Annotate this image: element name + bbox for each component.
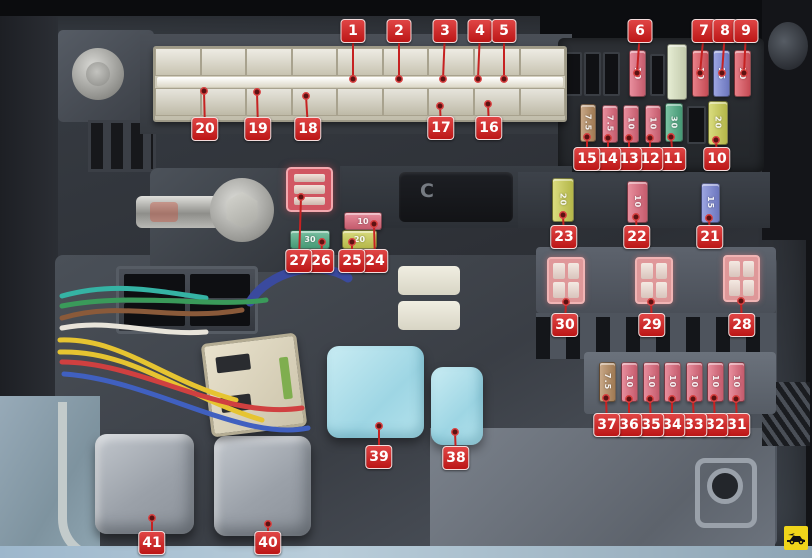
- callout-dot-15: [584, 134, 590, 140]
- callout-21: 21: [696, 225, 723, 249]
- callout-9: 9: [734, 19, 759, 43]
- callout-dot-17: [437, 103, 443, 109]
- callout-dot-36: [626, 396, 632, 402]
- callout-28: 28: [728, 313, 755, 337]
- fuse-box-photo: C 101015107.57.5101030202010151030207.51…: [0, 0, 812, 558]
- callout-dot-14: [605, 135, 611, 141]
- callout-dot-29: [648, 299, 654, 305]
- callout-dot-8: [719, 70, 725, 76]
- callout-dot-34: [669, 396, 675, 402]
- callout-dot-33: [690, 396, 696, 402]
- callout-24: 24: [361, 249, 388, 273]
- callout-dot-28: [738, 298, 744, 304]
- callout-10: 10: [703, 147, 730, 171]
- callout-dot-13: [626, 135, 632, 141]
- callout-dot-25: [349, 239, 355, 245]
- callout-dot-35: [647, 396, 653, 402]
- callout-dot-27: [298, 194, 304, 200]
- callout-dot-30: [563, 299, 569, 305]
- callout-dot-7: [697, 70, 703, 76]
- callout-29: 29: [638, 313, 665, 337]
- callout-16: 16: [475, 116, 502, 140]
- callout-dot-19: [254, 89, 260, 95]
- callout-dot-24: [371, 221, 377, 227]
- callout-19: 19: [244, 117, 271, 141]
- callout-dot-11: [668, 134, 674, 140]
- car-icon: [786, 531, 806, 545]
- callout-dot-12: [647, 135, 653, 141]
- callout-dot-3: [440, 76, 446, 82]
- callout-dot-18: [303, 93, 309, 99]
- callout-dot-10: [713, 137, 719, 143]
- callout-27: 27: [285, 249, 312, 273]
- callout-dot-26: [319, 239, 325, 245]
- callout-dot-9: [741, 70, 747, 76]
- callout-23: 23: [550, 225, 577, 249]
- callout-4: 4: [468, 19, 493, 43]
- callout-leader-lines: [0, 0, 812, 558]
- callout-dot-32: [711, 395, 717, 401]
- callout-dot-1: [350, 76, 356, 82]
- callout-2: 2: [387, 19, 412, 43]
- callout-17: 17: [427, 116, 454, 140]
- callout-dot-4: [475, 76, 481, 82]
- callout-dot-5: [501, 76, 507, 82]
- callout-dot-37: [603, 395, 609, 401]
- callout-dot-2: [396, 76, 402, 82]
- callout-dot-40: [265, 521, 271, 527]
- callout-18: 18: [294, 117, 321, 141]
- car-logo: [784, 526, 808, 550]
- callout-dot-21: [706, 215, 712, 221]
- callout-15: 15: [573, 147, 600, 171]
- callout-25: 25: [338, 249, 365, 273]
- callout-11: 11: [659, 147, 686, 171]
- callout-37: 37: [593, 413, 620, 437]
- callout-dot-39: [376, 423, 382, 429]
- callout-dot-6: [634, 70, 640, 76]
- callout-dot-41: [149, 515, 155, 521]
- callout-22: 22: [623, 225, 650, 249]
- callout-38: 38: [442, 446, 469, 470]
- callout-dot-16: [485, 101, 491, 107]
- callout-3: 3: [433, 19, 458, 43]
- callout-dot-22: [633, 214, 639, 220]
- callout-20: 20: [191, 117, 218, 141]
- callout-6: 6: [628, 19, 653, 43]
- callout-1: 1: [341, 19, 366, 43]
- callout-41: 41: [138, 531, 165, 555]
- callout-39: 39: [365, 445, 392, 469]
- callout-40: 40: [254, 531, 281, 555]
- callout-dot-23: [560, 212, 566, 218]
- callout-dot-31: [733, 396, 739, 402]
- callout-dot-38: [452, 429, 458, 435]
- callout-30: 30: [551, 313, 578, 337]
- callout-dot-20: [201, 88, 207, 94]
- callout-5: 5: [492, 19, 517, 43]
